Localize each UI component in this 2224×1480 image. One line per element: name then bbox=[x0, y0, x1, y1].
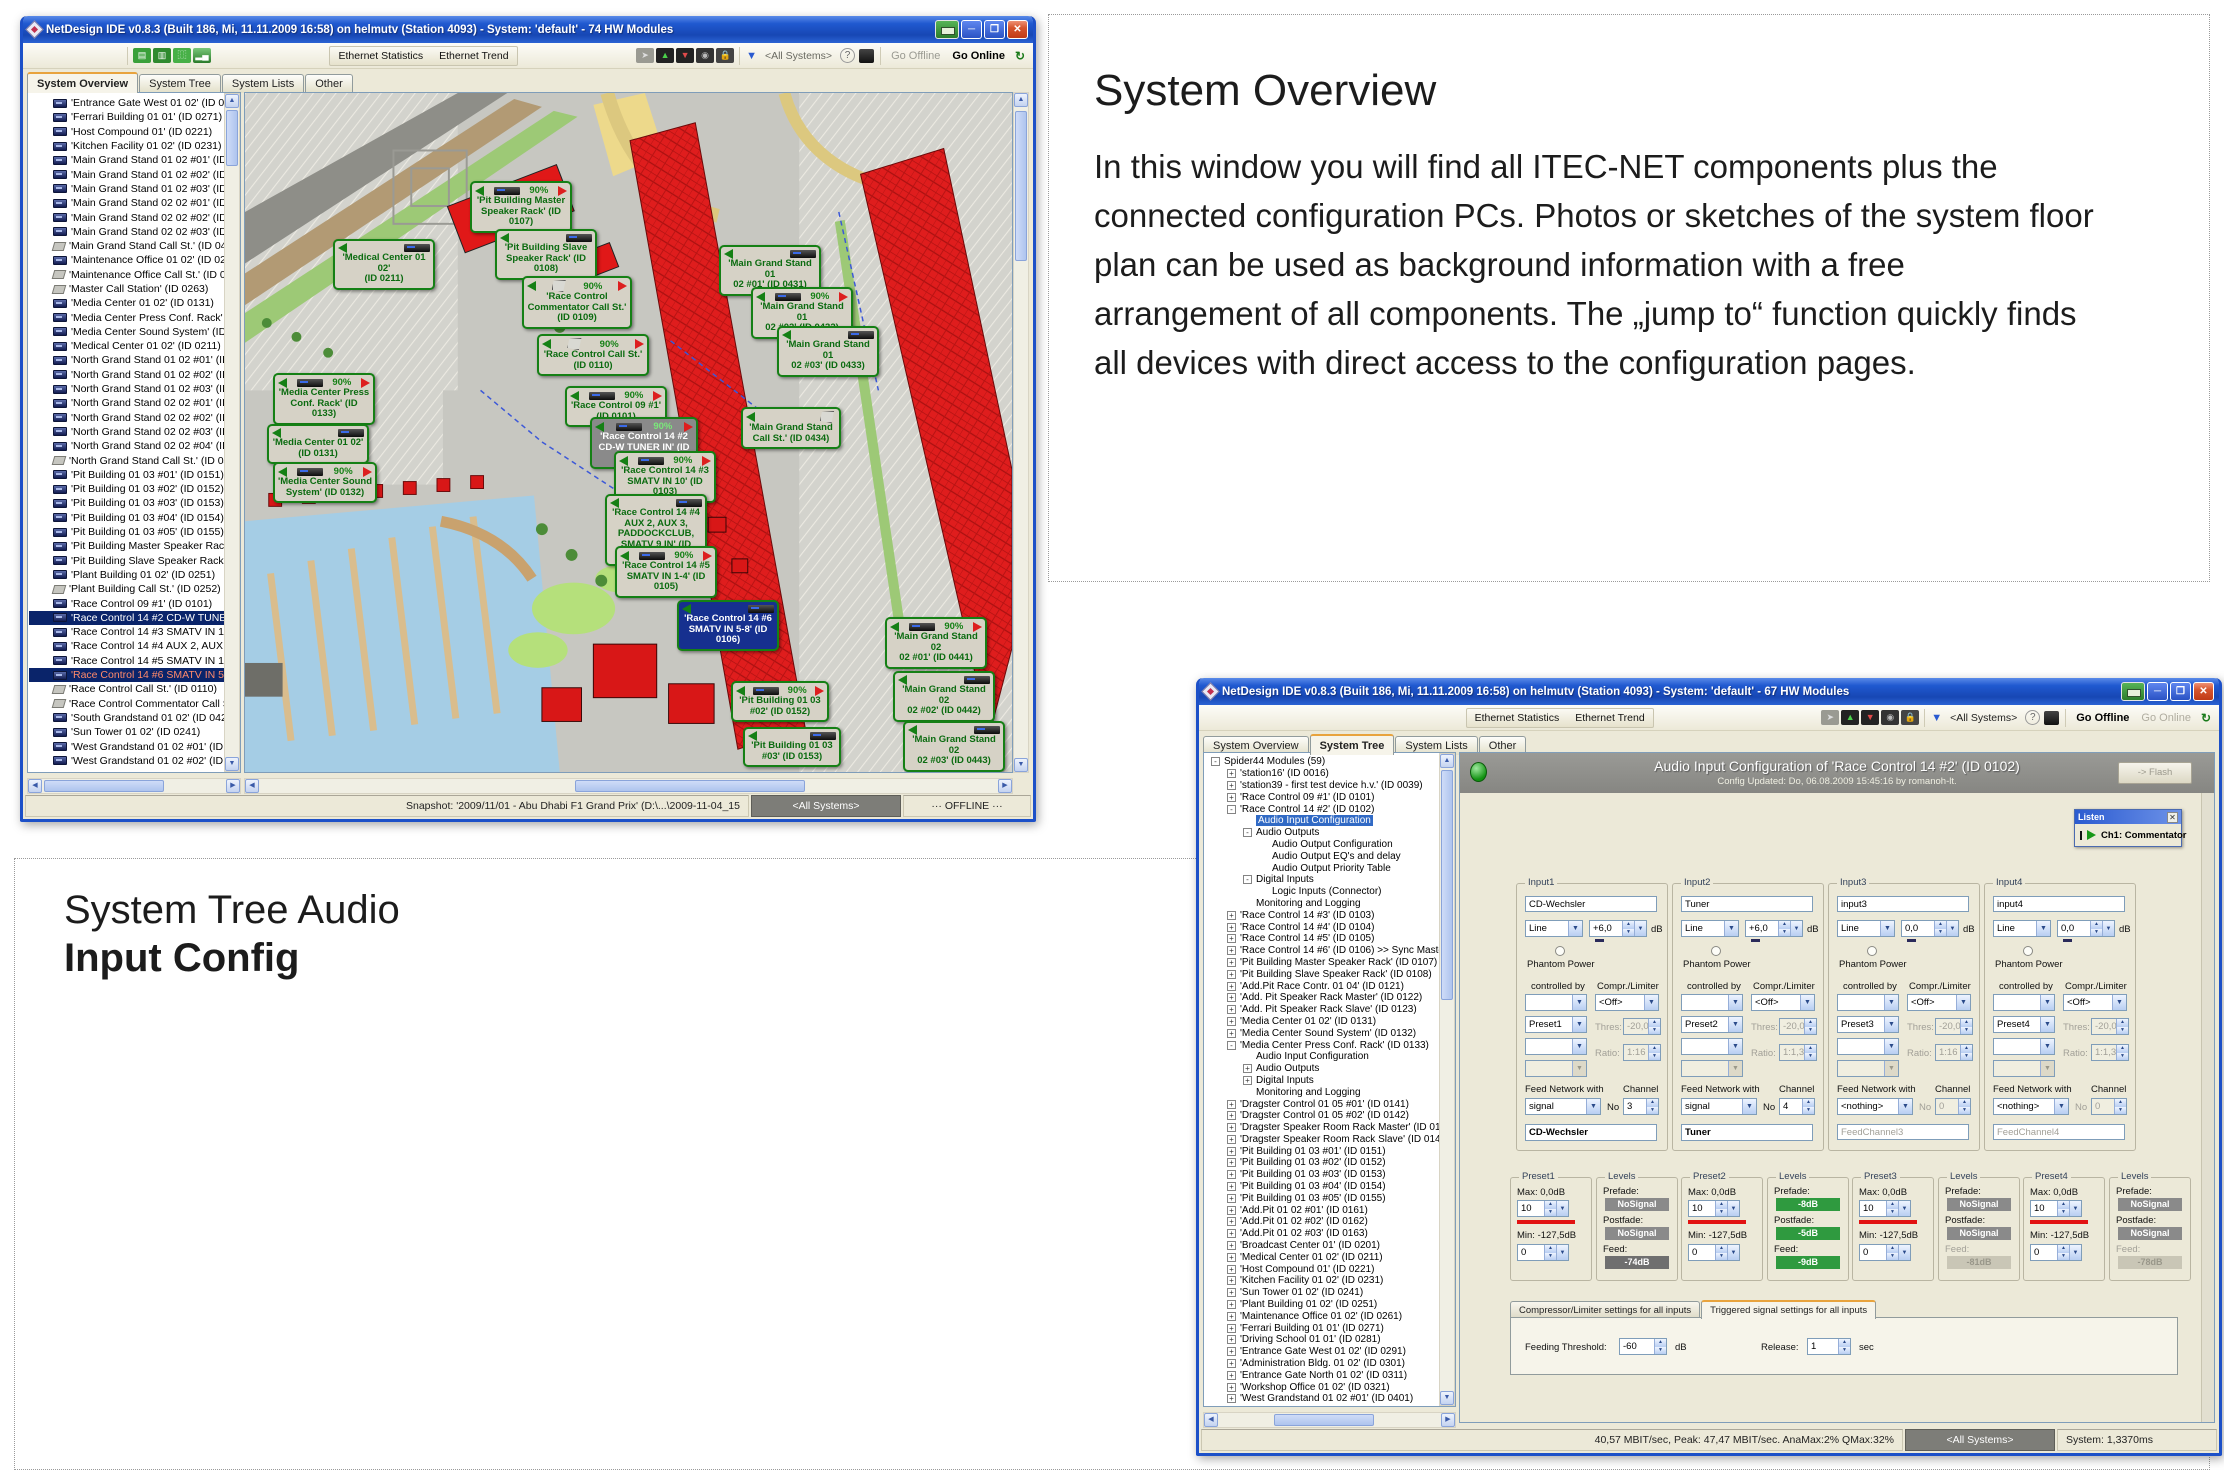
expander-icon[interactable] bbox=[1227, 1123, 1236, 1132]
jump-left-arrow-icon[interactable] bbox=[756, 292, 765, 302]
tree-item[interactable]: 'Maintenance Office 01 02' (ID 0261) bbox=[1205, 1310, 1439, 1322]
minimize-button[interactable]: ─ bbox=[2147, 682, 2168, 701]
tree-item[interactable]: 'Maintenance Office Call St.' (ID 0262) bbox=[29, 268, 224, 282]
jump-left-arrow-icon[interactable] bbox=[527, 281, 536, 291]
map-device-label[interactable]: 'Race Control 14 #6 SMATV IN 5-8' (ID 01… bbox=[677, 600, 779, 651]
go-offline-button[interactable]: Go Offline bbox=[885, 50, 946, 62]
tree-item[interactable]: 'West Grandstand 01 02 #01' (ID 0401) bbox=[29, 739, 224, 753]
close-button[interactable]: ✕ bbox=[1007, 20, 1028, 39]
tree-item[interactable]: 'Medical Center 01 02' (ID 0211) bbox=[29, 339, 224, 353]
menu-item[interactable] bbox=[1267, 715, 1283, 721]
input2-comp-select[interactable]: <Off>▼ bbox=[1751, 994, 1815, 1011]
ethernet-trend-button[interactable]: Ethernet Trend bbox=[1567, 709, 1652, 727]
map-device-label[interactable]: 'Medical Center 01 02' (ID 0211) bbox=[333, 239, 435, 290]
tree-item[interactable]: 'Pit Building 01 03 #05' (ID 0155) bbox=[1205, 1192, 1439, 1204]
tree-item[interactable]: Monitoring and Logging bbox=[1205, 1086, 1439, 1098]
tree-item[interactable]: 'Plant Building Call St.' (ID 0252) bbox=[29, 582, 224, 596]
expander-icon[interactable] bbox=[1227, 1100, 1236, 1109]
map-device-label[interactable]: 90% 'Media Center Sound System' (ID 0132… bbox=[273, 462, 377, 503]
tree-item[interactable]: 'Add.Pit 01 02 #02' (ID 0162) bbox=[1205, 1216, 1439, 1228]
map-device-label[interactable]: 'Main Grand Stand 01 02 #03' (ID 0433) bbox=[777, 326, 879, 377]
flash-button[interactable]: -> Flash bbox=[2118, 762, 2192, 784]
globe-icon[interactable]: ◉ bbox=[1881, 710, 1899, 725]
tree-item[interactable]: 'Add. Pit Speaker Rack Master' (ID 0122) bbox=[1205, 992, 1439, 1004]
input4-feed-name-field[interactable]: FeedChannel4 bbox=[1993, 1124, 2125, 1140]
jump-left-arrow-icon[interactable] bbox=[619, 456, 628, 466]
input3-feed-name-field[interactable]: FeedChannel3 bbox=[1837, 1124, 1969, 1140]
tree-item[interactable]: 'Broadcast Center 01' (ID 0201) bbox=[1205, 1240, 1439, 1252]
jump-right-arrow-icon[interactable] bbox=[702, 456, 711, 466]
tree-item[interactable]: 'Dragster Control 01 05 #01' (ID 0141) bbox=[1205, 1098, 1439, 1110]
input2-feed-name-field[interactable]: Tuner bbox=[1681, 1124, 1813, 1141]
preset1-min-stepper[interactable]: 0▲▼▼ bbox=[1517, 1244, 1569, 1261]
jump-left-arrow-icon[interactable] bbox=[736, 686, 745, 696]
floor-plan-pane[interactable]: 'Medical Center 01 02' (ID 0211) 90% 'Pi… bbox=[244, 92, 1013, 773]
input4-thres-stepper[interactable]: -20,0▲▼ bbox=[2091, 1018, 2129, 1035]
tree-item[interactable]: 'Sun Tower 01 02' (ID 0241) bbox=[1205, 1287, 1439, 1299]
tree-item[interactable]: 'Media Center Sound System' (ID 0132) bbox=[1205, 1027, 1439, 1039]
expander-icon[interactable] bbox=[1227, 1312, 1236, 1321]
tree-item[interactable]: 'Race Control 09 #1' (ID 0101) bbox=[1205, 791, 1439, 803]
tree-vertical-scrollbar[interactable]: ▲ ▼ bbox=[1439, 753, 1455, 1406]
tree-item[interactable]: Audio Output EQ's and delay bbox=[1205, 850, 1439, 862]
tree-item[interactable]: 'Host Compound 01' (ID 0221) bbox=[29, 125, 224, 139]
tree-item[interactable]: 'Kitchen Facility 01 02' (ID 0231) bbox=[1205, 1275, 1439, 1287]
tree-item[interactable]: 'Pit Building 01 03 #04' (ID 0154) bbox=[1205, 1181, 1439, 1193]
input1-source-select[interactable]: Line▼ bbox=[1525, 920, 1583, 937]
expander-icon[interactable] bbox=[1243, 1064, 1252, 1073]
expander-icon[interactable] bbox=[1243, 1052, 1252, 1061]
input3-channel-stepper[interactable]: 0▲▼ bbox=[1935, 1098, 1971, 1115]
map-device-label[interactable]: 'Main Grand Stand 02 02 #03' (ID 0443) bbox=[903, 721, 1005, 772]
expander-icon[interactable] bbox=[1227, 1005, 1236, 1014]
tree-item[interactable]: Spider44 Modules (59) bbox=[1205, 756, 1439, 768]
tree-item[interactable]: 'Pit Building Slave Speaker Rack' (ID 01… bbox=[29, 554, 224, 568]
map-device-label[interactable]: 90% 'Race Control Commentator Call St.' … bbox=[522, 276, 632, 329]
tree-item[interactable]: 'Pit Building Slave Speaker Rack' (ID 01… bbox=[1205, 968, 1439, 980]
jump-left-arrow-icon[interactable] bbox=[595, 422, 604, 432]
tree-item[interactable]: 'Entrance Gate North 01 02' (ID 0311) bbox=[1205, 1369, 1439, 1381]
menu-item[interactable] bbox=[27, 53, 43, 59]
menu-item[interactable] bbox=[43, 53, 59, 59]
jump-right-arrow-icon[interactable] bbox=[973, 622, 982, 632]
tree-item[interactable]: 'Pit Building Master Speaker Rack' (ID 0… bbox=[29, 539, 224, 553]
expander-icon[interactable] bbox=[1227, 1017, 1236, 1026]
input2-thres-stepper[interactable]: -20,0▲▼ bbox=[1779, 1018, 1817, 1035]
expander-icon[interactable] bbox=[1227, 1324, 1236, 1333]
expander-icon[interactable] bbox=[1227, 1147, 1236, 1156]
input1-ctrl2-select[interactable]: ▼ bbox=[1525, 1038, 1587, 1055]
tree-item[interactable]: 'Media Center 01 02' (ID 0131) bbox=[29, 296, 224, 310]
input1-thres-stepper[interactable]: -20,0▲▼ bbox=[1623, 1018, 1661, 1035]
tree-item[interactable]: 'Main Grand Stand 01 02 #02' (ID 0432) bbox=[29, 167, 224, 181]
input4-ctrl2-select[interactable]: ▼ bbox=[1993, 1038, 2055, 1055]
expander-icon[interactable] bbox=[1227, 982, 1236, 991]
tree-item[interactable]: 'North Grand Stand 01 02 #03' (ID 0463) bbox=[29, 382, 224, 396]
tree-item[interactable]: 'North Grand Stand Call St.' (ID 0475) bbox=[29, 453, 224, 467]
tree-item[interactable]: 'Add. Pit Speaker Rack Slave' (ID 0123) bbox=[1205, 1004, 1439, 1016]
play-icon[interactable] bbox=[2087, 830, 2096, 840]
tree-item[interactable]: Audio Input Configuration bbox=[1205, 815, 1439, 827]
tree-item[interactable]: 'North Grand Stand 02 02 #04' (ID 0474) bbox=[29, 439, 224, 453]
input4-ratio-stepper[interactable]: 1:1,33▲▼ bbox=[2091, 1044, 2129, 1061]
input2-source-select[interactable]: Line▼ bbox=[1681, 920, 1739, 937]
jump-right-arrow-icon[interactable] bbox=[363, 467, 372, 477]
expander-icon[interactable] bbox=[1227, 1217, 1236, 1226]
input2-ctrl-select[interactable]: ▼ bbox=[1681, 994, 1743, 1011]
input3-name-field[interactable]: input3 bbox=[1837, 896, 1969, 912]
map-device-label[interactable]: 'Main Grand Stand 02 02 #02' (ID 0442) bbox=[893, 671, 995, 722]
map-device-label[interactable]: 'Pit Building Slave Speaker Rack' (ID 01… bbox=[495, 229, 597, 280]
config-scrollbar[interactable] bbox=[2201, 793, 2214, 1422]
input1-preset-select[interactable]: Preset1▼ bbox=[1525, 1016, 1587, 1033]
tree-item[interactable]: 'Plant Building 01 02' (ID 0251) bbox=[1205, 1299, 1439, 1311]
upload-icon[interactable]: ▲ bbox=[656, 48, 674, 63]
input3-ctrl2-select[interactable]: ▼ bbox=[1837, 1038, 1899, 1055]
map-device-label[interactable]: 90% 'Media Center Press Conf. Rack' (ID … bbox=[273, 373, 375, 425]
jump-right-arrow-icon[interactable] bbox=[839, 292, 848, 302]
tree-item[interactable]: Digital Inputs bbox=[1205, 1075, 1439, 1087]
expander-icon[interactable] bbox=[1259, 864, 1268, 873]
map-device-label[interactable]: 90% 'Main Grand Stand 02 02 #01' (ID 044… bbox=[885, 617, 987, 669]
device-tool-icon[interactable] bbox=[859, 49, 874, 63]
refresh-icon[interactable]: ↻ bbox=[2201, 711, 2211, 725]
expander-icon[interactable] bbox=[1227, 805, 1236, 814]
tree-item[interactable]: 'Workshop Office 01 02' (ID 0321) bbox=[1205, 1381, 1439, 1393]
tab-other[interactable]: Other bbox=[305, 74, 353, 93]
tree-item[interactable]: 'Pit Building 01 03 #04' (ID 0154) bbox=[29, 511, 224, 525]
map-device-label[interactable]: 90% 'Pit Building Master Speaker Rack' (… bbox=[470, 181, 572, 233]
title-bar[interactable]: NetDesign IDE v0.8.3 (Built 186, Mi, 11.… bbox=[23, 16, 1033, 43]
preset4-min-stepper[interactable]: 0▲▼▼ bbox=[2030, 1244, 2082, 1261]
tab-system-tree[interactable]: System Tree bbox=[139, 74, 221, 93]
map-device-label[interactable]: 'Main Grand Stand Call St.' (ID 0434) bbox=[741, 407, 841, 449]
download-icon[interactable]: ▼ bbox=[1861, 710, 1879, 725]
input4-name-field[interactable]: input4 bbox=[1993, 896, 2125, 912]
stop-icon[interactable] bbox=[2080, 831, 2082, 840]
map-device-label[interactable]: 90% 'Pit Building 01 03 #02' (ID 0152) bbox=[731, 681, 829, 722]
preset4-max-stepper[interactable]: 10▲▼▼ bbox=[2030, 1200, 2082, 1217]
trend-icon[interactable]: ▂▄ bbox=[193, 48, 211, 63]
input1-ctrl3-select[interactable]: ▼ bbox=[1525, 1060, 1587, 1077]
tree-item[interactable]: 'West Grandstand 01 02 #01' (ID 0401) bbox=[1205, 1393, 1439, 1405]
tree-item[interactable]: 'Race Control 14 #4 AUX 2, AUX 3, PADDO'… bbox=[29, 639, 224, 653]
tab-system-overview[interactable]: System Overview bbox=[27, 72, 138, 93]
tree-item[interactable]: 'Race Control 14 #4' (ID 0104) bbox=[1205, 921, 1439, 933]
title-bar[interactable]: NetDesign IDE v0.8.3 (Built 186, Mi, 11.… bbox=[1199, 678, 2219, 705]
tree-item[interactable]: 'Pit Building 01 03 #02' (ID 0152) bbox=[1205, 1157, 1439, 1169]
jump-right-arrow-icon[interactable] bbox=[618, 281, 627, 291]
input1-phantom-radio[interactable] bbox=[1555, 946, 1565, 956]
map-device-label[interactable]: 90% 'Race Control Call St.' (ID 0110) bbox=[537, 334, 649, 376]
expander-icon[interactable] bbox=[1227, 1029, 1236, 1038]
info-icon[interactable]: ? bbox=[2025, 710, 2040, 725]
input1-ratio-stepper[interactable]: 1:16▲▼ bbox=[1623, 1044, 1661, 1061]
tree-item[interactable]: 'Pit Building 01 03 #02' (ID 0152) bbox=[29, 482, 224, 496]
jump-right-arrow-icon[interactable] bbox=[635, 339, 644, 349]
input3-feed-select[interactable]: <nothing>▼ bbox=[1837, 1098, 1913, 1115]
map-horizontal-scrollbar[interactable]: ◀ ▶ bbox=[244, 778, 1013, 794]
jump-left-arrow-icon[interactable] bbox=[890, 622, 899, 632]
tab-triggered-signal-settings[interactable]: Triggered signal settings for all inputs bbox=[1701, 1300, 1876, 1319]
expander-icon[interactable] bbox=[1227, 1300, 1236, 1309]
jump-left-arrow-icon[interactable] bbox=[542, 339, 551, 349]
expander-icon[interactable] bbox=[1243, 828, 1252, 837]
network-icon[interactable]: ⿲ bbox=[173, 48, 191, 63]
menu-item[interactable] bbox=[75, 53, 91, 59]
print-button[interactable] bbox=[935, 20, 959, 39]
input3-gain-stepper[interactable]: 0,0▲▼▼ bbox=[1901, 920, 1959, 937]
preset1-max-stepper[interactable]: 10▲▼▼ bbox=[1517, 1200, 1569, 1217]
tree-item[interactable]: 'Race Control Commentator Call St.' (ID … bbox=[29, 696, 224, 710]
lock-icon[interactable]: 🔒 bbox=[716, 48, 734, 63]
tree-item[interactable]: 'Main Grand Stand 01 02 #03' (ID 0433) bbox=[29, 182, 224, 196]
input2-name-field[interactable]: Tuner bbox=[1681, 896, 1813, 912]
input1-name-field[interactable]: CD-Wechsler bbox=[1525, 896, 1657, 912]
info-icon[interactable]: ? bbox=[840, 48, 855, 63]
input3-source-select[interactable]: Line▼ bbox=[1837, 920, 1895, 937]
expander-icon[interactable] bbox=[1243, 875, 1252, 884]
map-vertical-scrollbar[interactable]: ▲ ▼ bbox=[1013, 92, 1029, 773]
tree-item[interactable]: 'Pit Building Master Speaker Rack' (ID 0… bbox=[1205, 957, 1439, 969]
tree-item[interactable]: 'Main Grand Stand 02 02 #02' (ID 0442) bbox=[29, 210, 224, 224]
expander-icon[interactable] bbox=[1227, 1182, 1236, 1191]
go-online-button[interactable]: Go Online bbox=[2135, 712, 2197, 724]
input4-feed-select[interactable]: <nothing>▼ bbox=[1993, 1098, 2069, 1115]
expander-icon[interactable] bbox=[1227, 1394, 1236, 1403]
tree-item[interactable]: Logic Inputs (Connector) bbox=[1205, 886, 1439, 898]
input4-phantom-radio[interactable] bbox=[2023, 946, 2033, 956]
expander-icon[interactable] bbox=[1227, 1371, 1236, 1380]
tree-item[interactable]: 'Entrance Gate West 01 02' (ID 0291) bbox=[29, 96, 224, 110]
upload-icon[interactable]: ▲ bbox=[1841, 710, 1859, 725]
tab-system-tree[interactable]: System Tree bbox=[1310, 734, 1395, 755]
expander-icon[interactable] bbox=[1227, 1335, 1236, 1344]
expander-icon[interactable] bbox=[1227, 1135, 1236, 1144]
tree-item[interactable]: Audio Input Configuration bbox=[1205, 1051, 1439, 1063]
expander-icon[interactable] bbox=[1227, 1194, 1236, 1203]
jump-right-arrow-icon[interactable] bbox=[684, 422, 693, 432]
tree-item[interactable]: 'Main Grand Stand 02 02 #01' (ID 0441) bbox=[29, 196, 224, 210]
tree-item[interactable]: 'Entrance Gate West 01 02' (ID 0291) bbox=[1205, 1346, 1439, 1358]
expander-icon[interactable] bbox=[1227, 1111, 1236, 1120]
tree-item[interactable]: 'Race Control 14 #3' (ID 0103) bbox=[1205, 909, 1439, 921]
expander-icon[interactable] bbox=[1227, 1158, 1236, 1167]
input2-gain-stepper[interactable]: +6,0▲▼▼ bbox=[1745, 920, 1803, 937]
tree-item[interactable]: 'Pit Building 01 03 #03' (ID 0153) bbox=[1205, 1169, 1439, 1181]
input2-preset-select[interactable]: Preset2▼ bbox=[1681, 1016, 1743, 1033]
map-device-label[interactable]: 'Media Center 01 02' (ID 0131) bbox=[267, 424, 369, 464]
tree-item[interactable]: 'Pit Building 01 03 #05' (ID 0155) bbox=[29, 525, 224, 539]
preset2-min-stepper[interactable]: 0▲▼▼ bbox=[1688, 1244, 1740, 1261]
input3-ctrl3-select[interactable]: ▼ bbox=[1837, 1060, 1899, 1077]
go-online-button[interactable]: Go Online bbox=[946, 50, 1011, 62]
expander-icon[interactable] bbox=[1227, 934, 1236, 943]
expander-icon[interactable] bbox=[1259, 887, 1268, 896]
input4-source-select[interactable]: Line▼ bbox=[1993, 920, 2051, 937]
input1-ctrl-select[interactable]: ▼ bbox=[1525, 994, 1587, 1011]
expander-icon[interactable] bbox=[1227, 781, 1236, 790]
input4-gain-stepper[interactable]: 0,0▲▼▼ bbox=[2057, 920, 2115, 937]
expander-icon[interactable] bbox=[1227, 1241, 1236, 1250]
expander-icon[interactable] bbox=[1227, 1253, 1236, 1262]
filter-icon[interactable]: ▼ bbox=[746, 50, 757, 62]
tree-item[interactable]: 'Race Control 14 #6 SMATV IN 5-8' (ID 01… bbox=[29, 668, 224, 682]
expander-icon[interactable] bbox=[1259, 852, 1268, 861]
tree-item[interactable]: 'Sun Tower 01 02' (ID 0241) bbox=[29, 725, 224, 739]
tree-item[interactable]: 'Media Center Press Conf. Rack' (ID 0133… bbox=[29, 310, 224, 324]
tree-horizontal-scrollbar[interactable]: ◀ ▶ bbox=[27, 778, 241, 794]
tree-item[interactable]: 'Race Control 14 #5 SMATV IN 1-4' (ID 01… bbox=[29, 654, 224, 668]
filter-icon[interactable]: ▼ bbox=[1931, 712, 1942, 724]
expander-icon[interactable] bbox=[1227, 769, 1236, 778]
tree-item[interactable]: 'Main Grand Stand 01 02 #01' (ID 0431) bbox=[29, 153, 224, 167]
tree-item[interactable]: 'Add.Pit 01 02 #03' (ID 0163) bbox=[1205, 1228, 1439, 1240]
go-offline-button[interactable]: Go Offline bbox=[2070, 712, 2135, 724]
jump-left-arrow-icon[interactable] bbox=[475, 186, 484, 196]
download-icon[interactable]: ▼ bbox=[676, 48, 694, 63]
preset3-max-stepper[interactable]: 10▲▼▼ bbox=[1859, 1200, 1911, 1217]
tree-item[interactable]: Audio Outputs bbox=[1205, 827, 1439, 839]
tree-item[interactable]: 'Ferrari Building 01 01' (ID 0271) bbox=[29, 110, 224, 124]
input4-preset-select[interactable]: Preset4▼ bbox=[1993, 1016, 2055, 1033]
system-filter-select[interactable]: <All Systems> bbox=[1944, 712, 2023, 724]
expander-icon[interactable] bbox=[1227, 911, 1236, 920]
tree-item[interactable]: 'Race Control 14 #2' (ID 0102) bbox=[1205, 803, 1439, 815]
expander-icon[interactable] bbox=[1227, 970, 1236, 979]
expander-icon[interactable] bbox=[1227, 1265, 1236, 1274]
preset2-max-stepper[interactable]: 10▲▼▼ bbox=[1688, 1200, 1740, 1217]
tree-item[interactable]: 'North Grand Stand 02 02 #03' (ID 0473) bbox=[29, 425, 224, 439]
jump-left-arrow-icon[interactable] bbox=[570, 391, 579, 401]
jump-left-arrow-icon[interactable] bbox=[746, 412, 755, 422]
input2-ctrl3-select[interactable]: ▼ bbox=[1681, 1060, 1743, 1077]
globe-icon[interactable]: ◉ bbox=[696, 48, 714, 63]
tree-vertical-scrollbar[interactable]: ▲ ▼ bbox=[224, 93, 240, 772]
jump-right-arrow-icon[interactable] bbox=[815, 686, 824, 696]
input2-phantom-radio[interactable] bbox=[1711, 946, 1721, 956]
tree-item[interactable]: 'Host Compound 01' (ID 0221) bbox=[1205, 1263, 1439, 1275]
menu-item[interactable] bbox=[1283, 715, 1299, 721]
tree-item[interactable]: 'Main Grand Stand Call St.' (ID 0434) bbox=[29, 239, 224, 253]
expander-icon[interactable] bbox=[1227, 1041, 1236, 1050]
modules-icon[interactable]: ▥ bbox=[153, 48, 171, 63]
system-filter-select[interactable]: <All Systems> bbox=[759, 50, 838, 62]
input3-preset-select[interactable]: Preset3▼ bbox=[1837, 1016, 1899, 1033]
release-stepper[interactable]: 1▲▼ bbox=[1807, 1338, 1851, 1355]
tree-item[interactable]: 'North Grand Stand 02 02 #01' (ID 0471) bbox=[29, 396, 224, 410]
minimize-button[interactable]: ─ bbox=[961, 20, 982, 39]
input3-ratio-stepper[interactable]: 1:16▲▼ bbox=[1935, 1044, 1973, 1061]
refresh-icon[interactable]: ↻ bbox=[1015, 49, 1025, 63]
tree-item[interactable]: 'Add.Pit 01 02 #01' (ID 0161) bbox=[1205, 1204, 1439, 1216]
ethernet-statistics-button[interactable]: Ethernet Statistics bbox=[1467, 709, 1568, 727]
tree-item[interactable]: 'North Grand Stand 02 02 #02' (ID 0472) bbox=[29, 411, 224, 425]
tree-item[interactable]: Audio Output Priority Table bbox=[1205, 862, 1439, 874]
tree-item[interactable]: 'Master Call Station' (ID 0263) bbox=[29, 282, 224, 296]
expander-icon[interactable] bbox=[1227, 958, 1236, 967]
expander-icon[interactable] bbox=[1211, 757, 1220, 766]
menu-item[interactable] bbox=[59, 53, 75, 59]
input3-ctrl-select[interactable]: ▼ bbox=[1837, 994, 1899, 1011]
menu-item[interactable] bbox=[1203, 715, 1219, 721]
jump-right-arrow-icon[interactable] bbox=[361, 378, 370, 388]
tree-item[interactable]: 'Race Control 09 #1' (ID 0101) bbox=[29, 596, 224, 610]
input1-feed-name-field[interactable]: CD-Wechsler bbox=[1525, 1124, 1657, 1141]
sync-icon[interactable]: ➤ bbox=[1821, 710, 1839, 725]
close-button[interactable]: ✕ bbox=[2193, 682, 2214, 701]
tree-item[interactable]: 'Pit Building 01 03 #01' (ID 0151) bbox=[29, 468, 224, 482]
tab-system-lists[interactable]: System Lists bbox=[222, 74, 304, 93]
expander-icon[interactable] bbox=[1243, 816, 1252, 825]
tree-item[interactable]: 'Race Control 14 #3 SMATV IN 10' (ID 010… bbox=[29, 625, 224, 639]
tree-item[interactable]: 'Dragster Control 01 05 #02' (ID 0142) bbox=[1205, 1110, 1439, 1122]
jump-right-arrow-icon[interactable] bbox=[703, 551, 712, 561]
input2-ratio-stepper[interactable]: 1:1,33▲▼ bbox=[1779, 1044, 1817, 1061]
jump-left-arrow-icon[interactable] bbox=[620, 551, 629, 561]
map-device-label[interactable]: 'Pit Building 01 03 #03' (ID 0153) bbox=[743, 727, 841, 767]
tree-item[interactable]: 'Ferrari Building 01 01' (ID 0271) bbox=[1205, 1322, 1439, 1334]
tree-item[interactable]: 'West Grandstand 01 02 #02' (ID 0402) bbox=[29, 754, 224, 768]
ethernet-statistics-button[interactable]: Ethernet Statistics bbox=[330, 47, 431, 65]
expander-icon[interactable] bbox=[1227, 1288, 1236, 1297]
input2-ctrl2-select[interactable]: ▼ bbox=[1681, 1038, 1743, 1055]
tree-item[interactable]: 'North Grand Stand 01 02 #01' (ID 0461) bbox=[29, 353, 224, 367]
input1-comp-select[interactable]: <Off>▼ bbox=[1595, 994, 1659, 1011]
ethernet-trend-button[interactable]: Ethernet Trend bbox=[431, 47, 516, 65]
expander-icon[interactable] bbox=[1227, 923, 1236, 932]
input4-ctrl-select[interactable]: ▼ bbox=[1993, 994, 2055, 1011]
jump-left-arrow-icon[interactable] bbox=[278, 378, 287, 388]
tree-item[interactable]: 'Dragster Speaker Room Rack Master' (ID … bbox=[1205, 1122, 1439, 1134]
expander-icon[interactable] bbox=[1227, 1170, 1236, 1179]
input3-comp-select[interactable]: <Off>▼ bbox=[1907, 994, 1971, 1011]
tree-item[interactable]: 'station16' (ID 0016) bbox=[1205, 768, 1439, 780]
tree-item[interactable]: 'Pit Building 01 03 #03' (ID 0153) bbox=[29, 496, 224, 510]
jump-right-arrow-icon[interactable] bbox=[558, 186, 567, 196]
input1-gain-stepper[interactable]: +6,0▲▼▼ bbox=[1589, 920, 1647, 937]
expander-icon[interactable] bbox=[1227, 946, 1236, 955]
jump-left-arrow-icon[interactable] bbox=[278, 467, 287, 477]
expander-icon[interactable] bbox=[1227, 1229, 1236, 1238]
device-tool-icon[interactable] bbox=[2044, 711, 2059, 725]
tree-item[interactable]: 'Dragster Speaker Room Rack Slave' (ID 0… bbox=[1205, 1134, 1439, 1146]
tree-item[interactable]: 'South Grandstand 01 02' (ID 0421) bbox=[29, 711, 224, 725]
lock-icon[interactable]: 🔒 bbox=[1901, 710, 1919, 725]
expander-icon[interactable] bbox=[1227, 793, 1236, 802]
maximize-button[interactable]: ❐ bbox=[2170, 682, 2191, 701]
tree-item[interactable]: Audio Outputs bbox=[1205, 1063, 1439, 1075]
input2-feed-select[interactable]: signal▼ bbox=[1681, 1098, 1757, 1115]
tree-item[interactable]: 'Media Center Sound System' (ID 0132) bbox=[29, 325, 224, 339]
expander-icon[interactable] bbox=[1259, 840, 1268, 849]
menu-item[interactable] bbox=[91, 53, 107, 59]
tree-item[interactable]: 'Race Control 14 #5' (ID 0105) bbox=[1205, 933, 1439, 945]
tree-item[interactable]: 'Race Control 14 #6' (ID 0106) >> Sync M… bbox=[1205, 945, 1439, 957]
tree-item[interactable]: Monitoring and Logging bbox=[1205, 898, 1439, 910]
tree-item[interactable]: 'Pit Building 01 03 #01' (ID 0151) bbox=[1205, 1145, 1439, 1157]
input4-comp-select[interactable]: <Off>▼ bbox=[2063, 994, 2127, 1011]
tree-item[interactable]: 'station39 - first test device h.v.' (ID… bbox=[1205, 780, 1439, 792]
feeding-threshold-stepper[interactable]: -60▲▼ bbox=[1619, 1338, 1667, 1355]
tree-horizontal-scrollbar[interactable]: ◀ ▶ bbox=[1203, 1412, 1456, 1428]
input3-phantom-radio[interactable] bbox=[1867, 946, 1877, 956]
menu-item[interactable] bbox=[1219, 715, 1235, 721]
expander-icon[interactable] bbox=[1227, 993, 1236, 1002]
tree-item[interactable]: 'Add.Pit Race Contr. 01 04' (ID 0121) bbox=[1205, 980, 1439, 992]
expander-icon[interactable] bbox=[1227, 1206, 1236, 1215]
close-icon[interactable]: ✕ bbox=[2167, 812, 2178, 823]
